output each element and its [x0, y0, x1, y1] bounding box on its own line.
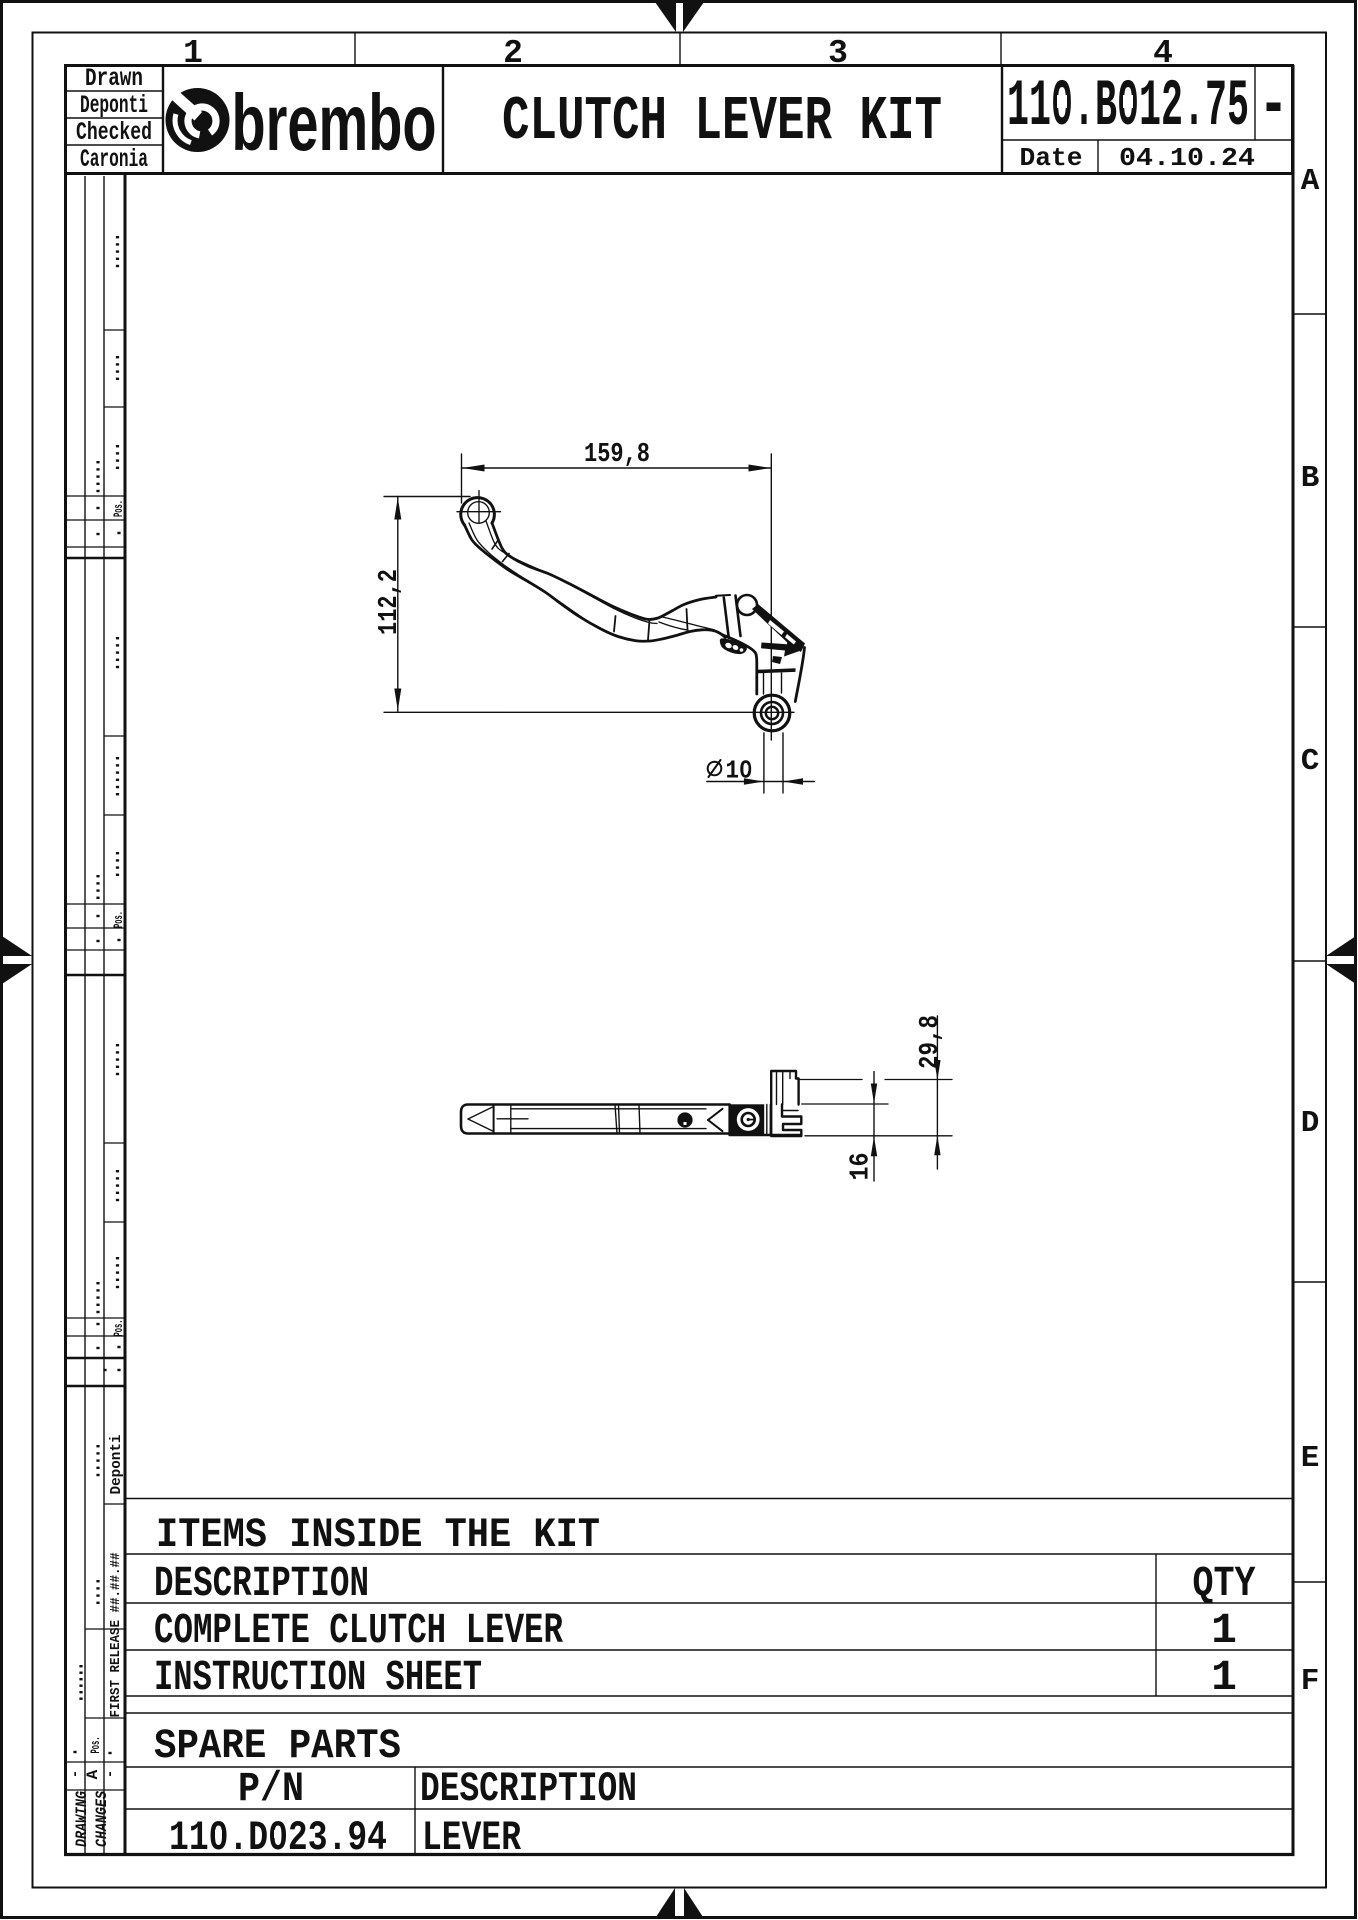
- svg-text:DRAWING: DRAWING: [73, 1791, 91, 1847]
- svg-text:04.10.24: 04.10.24: [1119, 143, 1255, 173]
- svg-text:ITEMS INSIDE THE KIT: ITEMS INSIDE THE KIT: [156, 1511, 600, 1559]
- svg-text:CLUTCH LEVER KIT: CLUTCH LEVER KIT: [502, 86, 942, 157]
- svg-text:SPARE PARTS: SPARE PARTS: [154, 1722, 401, 1770]
- svg-text:Pos.: Pos.: [111, 500, 126, 517]
- svg-text:-: -: [68, 1770, 84, 1778]
- svg-text:C: C: [1301, 744, 1320, 779]
- svg-text:B: B: [1301, 461, 1320, 496]
- svg-text:Date: Date: [1020, 143, 1083, 173]
- svg-text:LEVER: LEVER: [422, 1814, 522, 1862]
- svg-text:Drawn: Drawn: [85, 64, 143, 93]
- svg-text:1: 1: [1211, 1653, 1237, 1702]
- svg-text:DESCRIPTION: DESCRIPTION: [154, 1559, 369, 1608]
- svg-text:A: A: [1301, 164, 1320, 199]
- svg-text:-: -: [103, 1770, 119, 1778]
- svg-text:Pos.: Pos.: [111, 1320, 126, 1337]
- svg-text:A: A: [84, 1769, 102, 1779]
- svg-text:DESCRIPTION: DESCRIPTION: [420, 1765, 637, 1813]
- svg-text:16: 16: [847, 1153, 877, 1181]
- svg-text:1: 1: [1211, 1606, 1237, 1655]
- svg-text:F: F: [1301, 1664, 1320, 1699]
- svg-text:159,8: 159,8: [584, 440, 650, 470]
- svg-text:COMPLETE CLUTCH LEVER: COMPLETE CLUTCH LEVER: [154, 1606, 563, 1655]
- svg-text:CHANGES: CHANGES: [93, 1790, 111, 1847]
- svg-text:29,8: 29,8: [916, 1015, 946, 1069]
- svg-text:QTY: QTY: [1193, 1559, 1256, 1608]
- svg-text:Deponti: Deponti: [80, 91, 148, 120]
- svg-text:P/N: P/N: [238, 1765, 304, 1813]
- svg-text:D: D: [1301, 1106, 1320, 1141]
- svg-text:brembo: brembo: [232, 78, 437, 167]
- svg-text:Pos.: Pos.: [88, 1737, 103, 1754]
- svg-text:Checked: Checked: [76, 118, 152, 147]
- svg-text:Pos.: Pos.: [111, 911, 126, 928]
- svg-text:Deponti: Deponti: [108, 1435, 125, 1495]
- svg-text:E: E: [1301, 1441, 1320, 1476]
- svg-text:FIRST RELEASE ##.##.##: FIRST RELEASE ##.##.##: [109, 1553, 124, 1718]
- svg-text:112,2: 112,2: [375, 569, 405, 635]
- svg-text:Caronia: Caronia: [80, 145, 148, 174]
- svg-text:INSTRUCTION SHEET: INSTRUCTION SHEET: [154, 1653, 482, 1702]
